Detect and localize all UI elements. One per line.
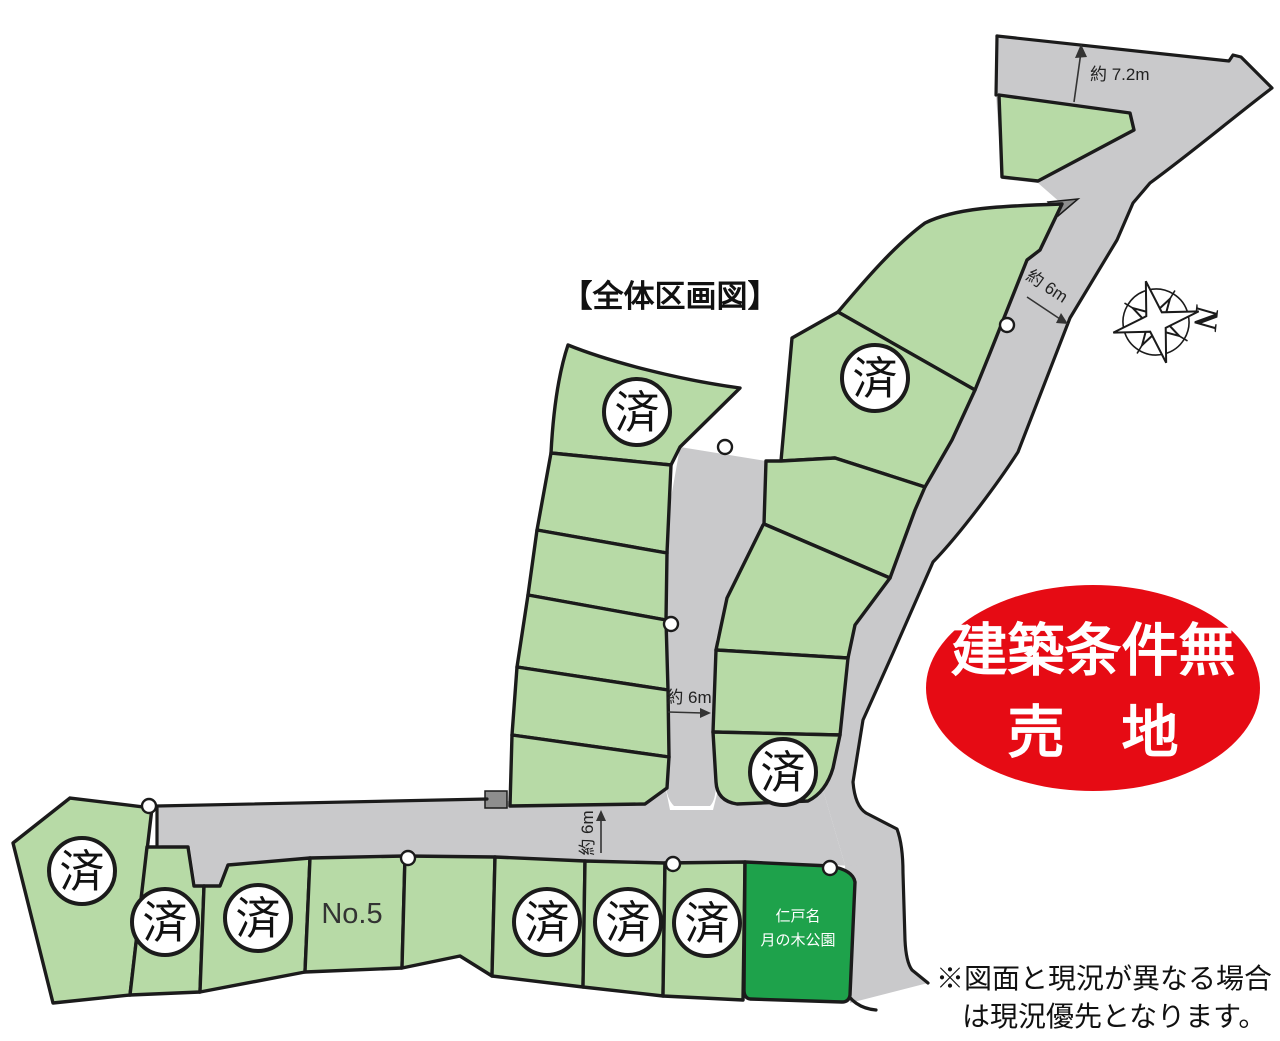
- boundary-marker: [401, 851, 415, 865]
- boundary-marker: [718, 440, 732, 454]
- sold-marker: 済: [595, 889, 661, 955]
- dimension-label: 約 7.2m: [1090, 65, 1150, 84]
- boundary-marker: [1000, 318, 1014, 332]
- sold-label: 済: [142, 898, 187, 948]
- lot-bl-5: [402, 856, 495, 976]
- dimension-label: 約 6m: [578, 810, 597, 855]
- sale-badge-line1: 建築条件無: [951, 620, 1236, 683]
- sale-badge: 建築条件無 売 地: [926, 585, 1260, 791]
- north-label: N: [1186, 303, 1226, 334]
- park-name-line2: 月の木公園: [760, 932, 835, 949]
- road-top-left-end: [996, 36, 997, 95]
- sold-label: 済: [524, 898, 569, 948]
- sold-label: 済: [605, 898, 650, 948]
- disclaimer-line1: ※図面と現況が異なる場合: [936, 963, 1272, 995]
- site-plan-map: 済 済 済 済 済 済 済 済: [0, 0, 1280, 1041]
- sold-label: 済: [684, 899, 729, 949]
- lot-no5-label: No.5: [321, 898, 382, 930]
- sold-label: 済: [59, 847, 104, 897]
- sold-label: 済: [852, 354, 897, 404]
- sold-marker: 済: [132, 889, 198, 955]
- disclaimer-line2: は現況優先となります。: [962, 1001, 1266, 1033]
- boundary-marker: [666, 857, 680, 871]
- page-title: 【全体区画図】: [562, 279, 779, 314]
- lots: [13, 95, 1134, 1003]
- sale-badge-line2: 売 地: [1008, 702, 1179, 765]
- sold-label: 済: [614, 388, 659, 438]
- sold-marker: 済: [49, 838, 115, 904]
- sold-marker: 済: [750, 739, 816, 805]
- sold-marker: 済: [842, 345, 908, 411]
- dimension-bottom-road: 約 6m: [578, 810, 606, 856]
- lot-ur-5: [713, 650, 848, 735]
- park-name-line1: 仁戸名: [775, 908, 820, 925]
- sold-marker: 済: [225, 885, 291, 951]
- dimension-label: 約 6m: [666, 688, 711, 707]
- sold-label: 済: [760, 748, 805, 798]
- boundary-marker: [664, 617, 678, 631]
- sold-marker: 済: [514, 889, 580, 955]
- sold-label: 済: [235, 894, 280, 944]
- boundary-marker: [823, 861, 837, 875]
- sold-marker: 済: [604, 379, 670, 445]
- sold-marker: 済: [674, 890, 740, 956]
- site-plan-page: 済 済 済 済 済 済 済 済: [0, 0, 1280, 1041]
- boundary-marker: [142, 799, 156, 813]
